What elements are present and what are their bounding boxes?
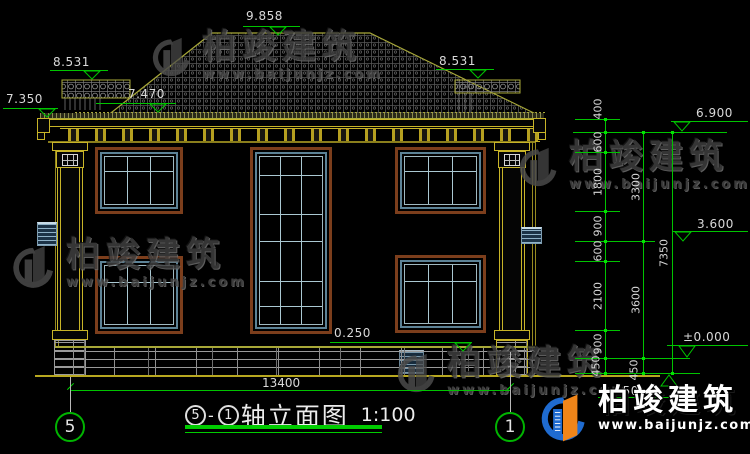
- dim-tick: [575, 211, 620, 212]
- pilaster-right: [494, 141, 530, 376]
- axis-line-left: [70, 377, 71, 413]
- window-lower-right: [395, 255, 486, 333]
- dim-chain2-2: 450: [628, 360, 641, 381]
- ac-louver-right: [521, 227, 542, 244]
- cornice-endcap-left: [37, 118, 50, 133]
- dentil-row: [60, 128, 540, 142]
- dim-chain1-7: 450: [590, 356, 603, 377]
- title-underline-thin: [185, 432, 382, 433]
- window-lower-left: [95, 256, 183, 334]
- dim-chain1-6: 900: [592, 334, 605, 355]
- dim-chain1-5: 2100: [592, 282, 605, 310]
- dim-chain1-1: 600: [592, 132, 605, 153]
- pilaster-left: [52, 141, 88, 376]
- dim-chain2-0: 3300: [630, 173, 643, 201]
- dim-total-width: 13400: [262, 376, 300, 390]
- cornice-lip: [48, 141, 535, 143]
- cornice-endcap-left2: [37, 132, 45, 140]
- ground-line: [35, 375, 660, 377]
- elevation-drawing-canvas: 柏竣建筑 www.baijunjz.com 柏竣建筑 www.baijunjz.…: [0, 0, 750, 454]
- ac-louver-left: [37, 222, 57, 246]
- brand-url: www.baijunjz.com: [598, 418, 750, 433]
- title-axis-from: 5: [185, 405, 206, 426]
- wall-edge-right-outer: [535, 142, 536, 346]
- axis-bubble-right: 1: [495, 412, 525, 442]
- dim-chain3-line: [672, 132, 673, 373]
- brand-logo: 柏竣建筑 www.baijunjz.com: [536, 386, 750, 450]
- dim-chain1-3: 900: [592, 216, 605, 237]
- window-stair-center: [250, 147, 332, 334]
- watermark-logo-icon: [8, 238, 58, 296]
- axis-bubble-left: 5: [55, 412, 85, 442]
- dim-chain1-0: 400: [592, 99, 605, 120]
- dim-tick: [575, 330, 620, 331]
- dim-chain2-1: 3600: [630, 286, 643, 314]
- dim-chain1-2: 1800: [592, 168, 605, 196]
- title-underline-thick: [185, 425, 382, 429]
- dim-chain2-line: [643, 132, 644, 373]
- title-scale: 1:100: [361, 404, 416, 426]
- axis-line-right: [510, 352, 511, 413]
- cornice-endcap-right: [533, 118, 546, 133]
- window-upper-right: [395, 147, 486, 214]
- brand-logo-icon: [536, 386, 590, 450]
- title-separator: -: [208, 406, 216, 425]
- cornice-endcap-right2: [538, 132, 546, 140]
- brand-name: 柏竣建筑: [598, 386, 750, 416]
- title-axis-to: 1: [218, 405, 239, 426]
- dim-chain1-4: 600: [592, 241, 605, 262]
- fascia: [37, 119, 546, 127]
- dim-chain3-0: 7350: [658, 239, 671, 267]
- wall-edge-right-inner: [532, 142, 533, 346]
- dim-total-line: [70, 390, 510, 391]
- dim-chain1-line: [605, 119, 606, 373]
- window-upper-left: [95, 147, 183, 214]
